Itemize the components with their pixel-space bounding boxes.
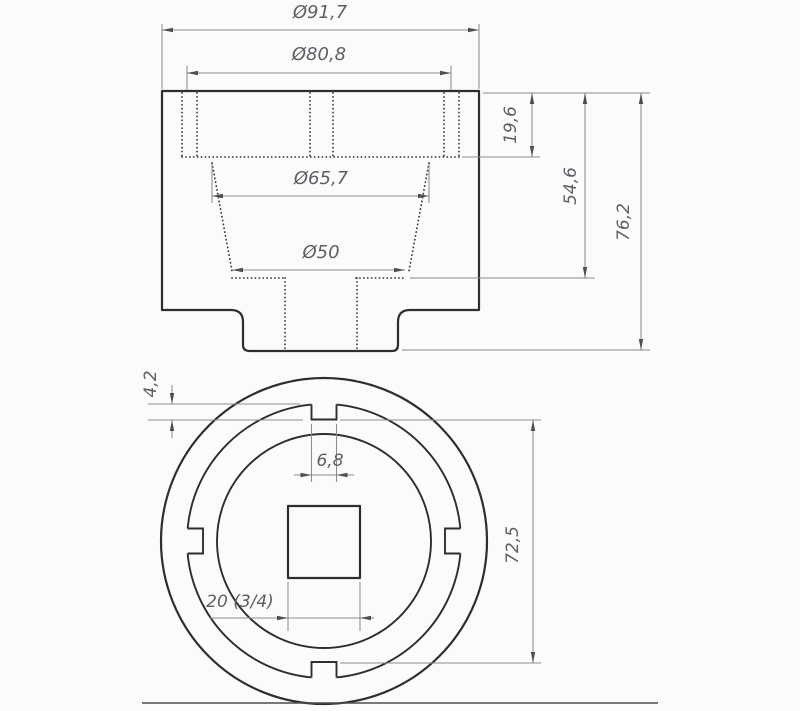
arrowhead xyxy=(162,28,173,32)
front-view: Ø91,7 Ø80,8 Ø65,7 Ø50 19,6 54,6 76,2 xyxy=(162,2,650,351)
arrowhead xyxy=(277,616,288,620)
dim-thread-diameter-label: Ø65,7 xyxy=(293,168,349,189)
end-view-arrows xyxy=(170,393,535,663)
dim-square-drive-label: 20 (3/4) xyxy=(206,592,274,612)
notch-left xyxy=(188,529,203,554)
arrowhead xyxy=(170,393,174,404)
arrowhead xyxy=(639,339,643,350)
arrowhead xyxy=(232,268,243,272)
arrowhead xyxy=(583,267,587,278)
hidden-line-taper xyxy=(409,163,429,271)
dim-rim-diameter-label: Ø80,8 xyxy=(291,44,346,65)
notch-top xyxy=(312,405,337,420)
castellated-rim xyxy=(188,405,461,678)
hidden-line-taper xyxy=(212,163,232,271)
dim-notch-width-label: 6,8 xyxy=(316,451,343,471)
square-drive xyxy=(288,506,360,578)
arrowhead xyxy=(530,93,534,104)
arrowhead xyxy=(394,268,405,272)
dim-bore-depth-label: 54,6 xyxy=(561,167,581,205)
dim-outer-diameter-label: Ø91,7 xyxy=(292,2,348,23)
rim-arc xyxy=(337,405,461,529)
arrowhead xyxy=(440,71,451,75)
extension-line xyxy=(187,66,451,90)
rim-arc xyxy=(188,554,312,678)
arrowhead xyxy=(468,28,479,32)
notch-right xyxy=(445,529,460,554)
dim-total-height-label: 76,2 xyxy=(614,203,634,241)
arrowhead xyxy=(531,420,535,431)
arrowhead xyxy=(170,420,174,431)
arrowhead xyxy=(360,616,371,620)
rim-arc xyxy=(337,554,461,678)
drawing-canvas: Ø91,7 Ø80,8 Ø65,7 Ø50 19,6 54,6 76,2 xyxy=(0,0,800,711)
arrowhead xyxy=(337,473,348,477)
rim-arc xyxy=(188,405,312,529)
end-view: 4,2 6,8 20 (3/4) 72,5 xyxy=(141,370,658,704)
dim-slot-depth-label: 19,6 xyxy=(501,106,521,144)
arrowhead xyxy=(301,473,312,477)
technical-drawing: Ø91,7 Ø80,8 Ø65,7 Ø50 19,6 54,6 76,2 xyxy=(0,0,800,711)
dim-notch-span-label: 72,5 xyxy=(503,526,523,564)
arrowhead xyxy=(531,652,535,663)
dim-bore-diameter-label: Ø50 xyxy=(301,242,339,263)
dim-notch-depth-label: 4,2 xyxy=(141,370,161,397)
arrowhead xyxy=(583,93,587,104)
arrowhead xyxy=(530,146,534,157)
notch-bottom xyxy=(312,662,337,677)
arrowhead xyxy=(187,71,198,75)
arrowhead xyxy=(639,93,643,104)
outer-circle xyxy=(161,378,487,704)
extension-line xyxy=(288,582,360,631)
front-view-outline xyxy=(162,91,479,351)
